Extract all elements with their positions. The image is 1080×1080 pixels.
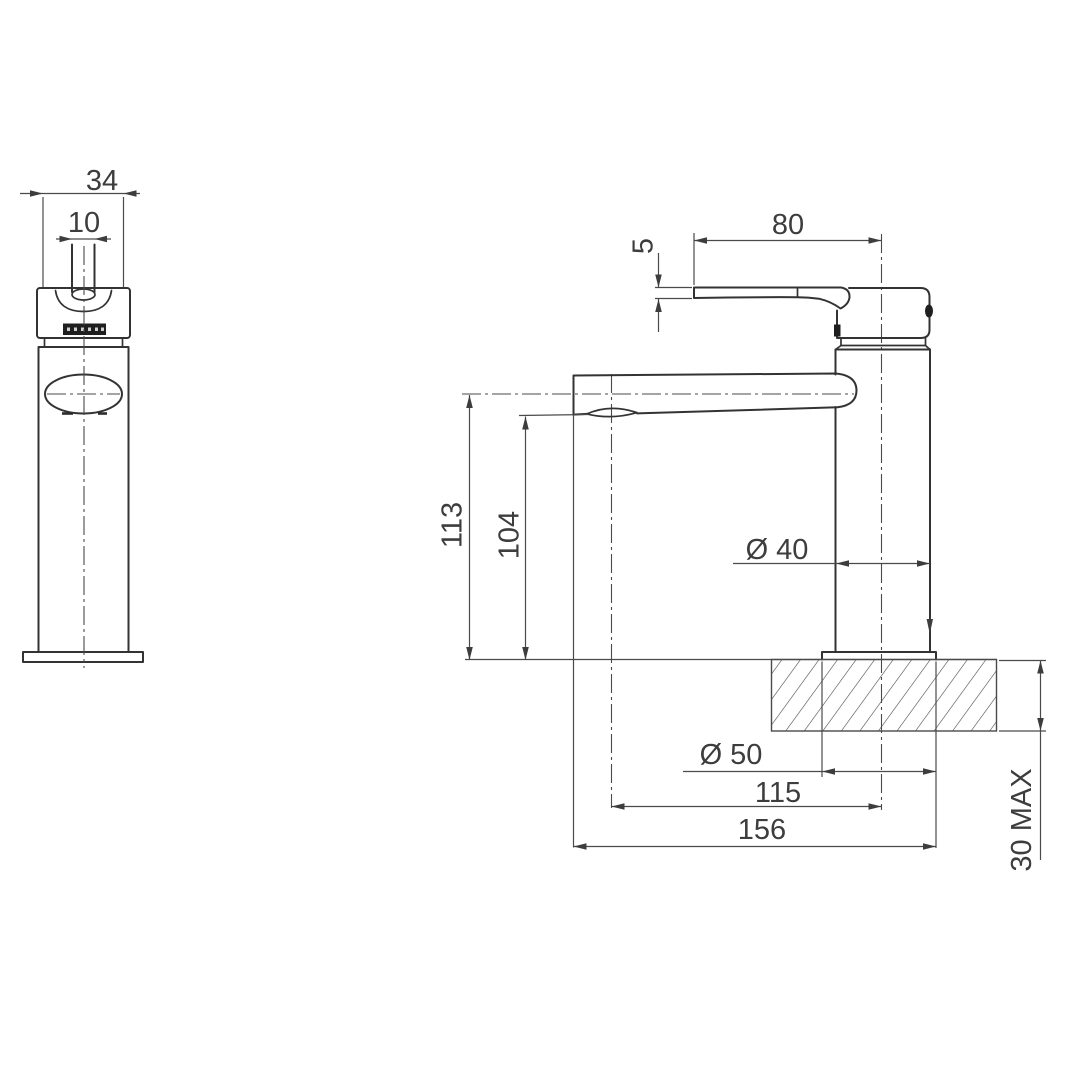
- dimension-30max: 30 MAX: [999, 661, 1046, 872]
- arrowhead: [466, 647, 473, 660]
- dim-label-80: 80: [772, 209, 804, 241]
- base-flange-front: [23, 652, 143, 662]
- arrowhead: [836, 560, 849, 567]
- side-view: 80 5 113 104: [437, 209, 1047, 872]
- arrowhead: [30, 190, 43, 197]
- front-view: 34 10: [20, 165, 143, 668]
- dim-label-156: 156: [738, 814, 786, 846]
- lever-handle-outline: [694, 288, 850, 309]
- tap-dimension-drawing: 34 10: [0, 0, 1080, 1080]
- technical-drawing-page: 34 10: [0, 0, 1080, 1080]
- dim-label-113: 113: [437, 502, 469, 548]
- tap-front-outline: [23, 245, 143, 669]
- arrowhead: [1037, 718, 1044, 731]
- cap-clip-mark: [834, 325, 841, 337]
- dim-label-34: 34: [86, 165, 118, 197]
- arrowhead: [655, 275, 662, 288]
- arrowhead: [574, 843, 587, 850]
- arrowhead: [869, 803, 882, 810]
- bench-hatch-area: [772, 660, 997, 732]
- set-screw-dot: [925, 305, 933, 318]
- bench-section: [465, 660, 997, 732]
- dim-label-dia40: Ø 40: [746, 534, 809, 566]
- arrowhead: [1037, 661, 1044, 674]
- dim-label-30max: 30 MAX: [1006, 768, 1038, 871]
- arrowhead: [612, 803, 625, 810]
- arrowhead: [923, 768, 936, 775]
- dimension-80: 80: [694, 209, 882, 285]
- dimension-5: 5: [628, 238, 693, 332]
- arrowhead: [822, 768, 835, 775]
- dimension-115: 115: [612, 777, 882, 810]
- arrowhead: [466, 395, 473, 408]
- cartridge-cap-outline: [837, 288, 930, 338]
- arrowhead: [124, 190, 137, 197]
- dimension-dia40: Ø 40: [733, 534, 930, 567]
- arrowhead: [869, 237, 882, 244]
- dimension-10: 10: [56, 207, 111, 242]
- dimension-113: 113: [437, 395, 473, 660]
- dim-label-10: 10: [68, 207, 100, 239]
- arrowhead: [923, 843, 936, 850]
- dim-label-115: 115: [755, 777, 801, 809]
- arrowhead: [694, 237, 707, 244]
- dim-label-104: 104: [494, 511, 526, 559]
- arrowhead: [655, 299, 662, 312]
- base-flange-side: [822, 652, 936, 660]
- arrowhead: [522, 647, 529, 660]
- edge-detail-arrow: [927, 619, 933, 634]
- dim-label-dia50: Ø 50: [700, 739, 763, 771]
- arrowhead: [522, 417, 529, 430]
- dim-label-5: 5: [628, 238, 660, 254]
- arrowhead: [917, 560, 930, 567]
